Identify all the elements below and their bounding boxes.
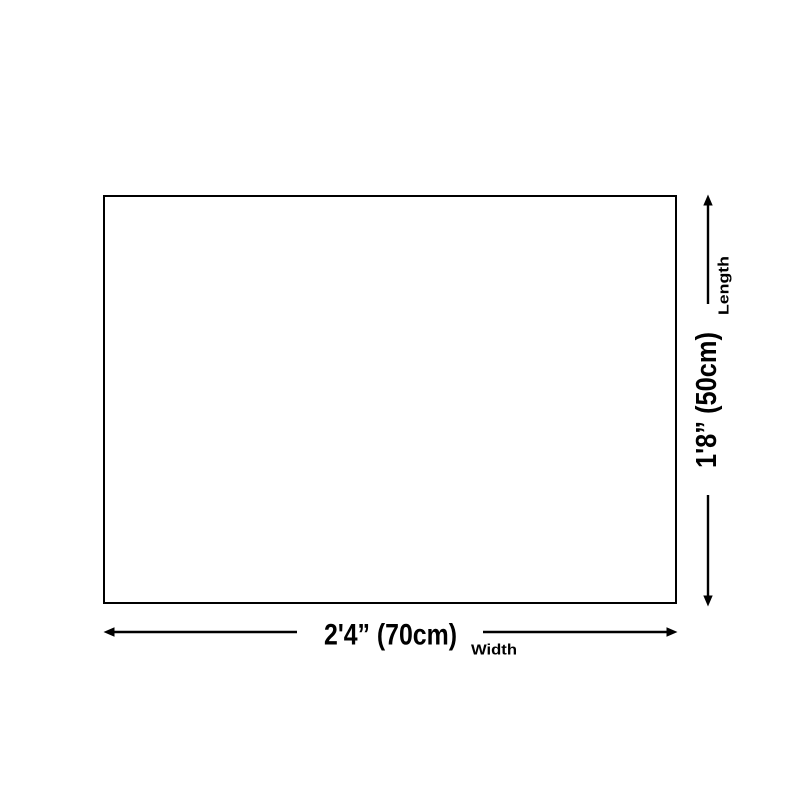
svg-text:Width: Width [471, 642, 517, 659]
svg-text:1'8” (50cm): 1'8” (50cm) [691, 332, 723, 468]
svg-text:2'4” (70cm): 2'4” (70cm) [324, 619, 457, 652]
svg-text:Length: Length [716, 256, 733, 315]
